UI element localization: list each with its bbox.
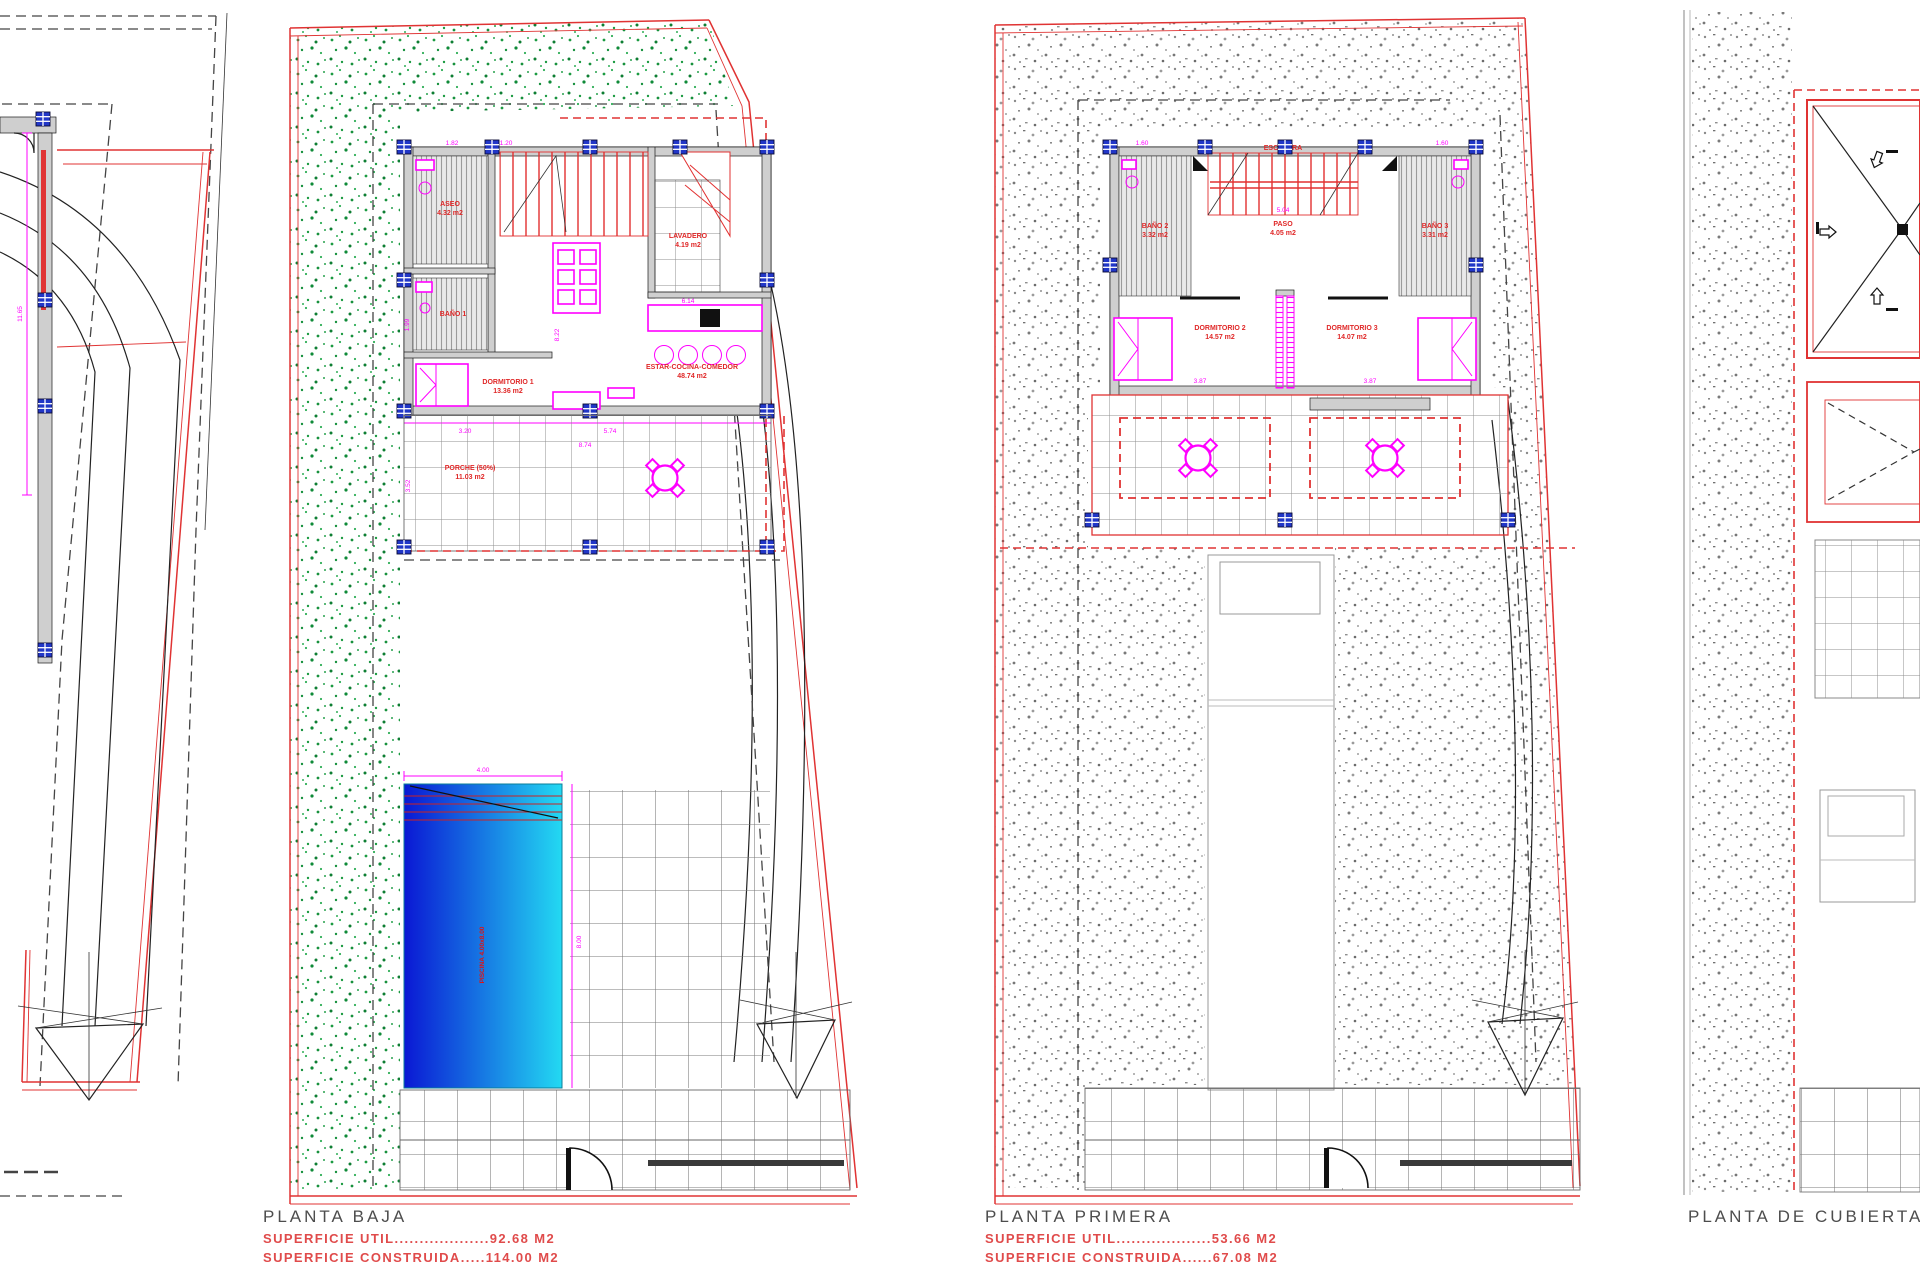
baja-caption: PLANTA BAJA SUPERFICIE UTIL.............… xyxy=(263,1207,559,1265)
primera-stairs: ESCALERA xyxy=(1208,145,1358,215)
room-area-dormitorio1: 13.36 m2 xyxy=(493,388,523,395)
planta-cubierta-panel: PLANTA DE CUBIERTA xyxy=(1670,0,1920,1280)
floor-plan-sheet: 11.65 xyxy=(0,0,1920,1280)
baja-room-lavadero: LAVADERO 4.19 m2 xyxy=(655,180,720,292)
room-label-bano3: BAÑO 3 xyxy=(1422,221,1449,230)
dim-aseo: 1.82 xyxy=(446,140,459,147)
primera-driveway-strip xyxy=(1208,555,1334,1090)
dim-stair: 1.20 xyxy=(500,140,513,147)
anchor-plate xyxy=(38,293,52,307)
primera-house: ESCALERA BAÑO 2 3.32 m2 BAÑO 3 3.31 m2 5… xyxy=(1103,140,1483,395)
dim-bano2: 1.60 xyxy=(1136,140,1149,147)
room-label-dormitorio3: DORMITORIO 3 xyxy=(1326,325,1377,332)
baja-pool: PISCINA 4.00x8.00 4.00 8.00 xyxy=(404,767,770,1088)
room-area-dormitorio3: 14.07 m2 xyxy=(1337,334,1367,341)
dim-dorm2: 3.87 xyxy=(1194,378,1207,385)
room-label-aseo: ASEO xyxy=(440,201,460,208)
room-label-paso: PASO xyxy=(1273,221,1293,228)
primera-room-bano3: BAÑO 3 3.31 m2 xyxy=(1399,156,1471,296)
baja-porch: PORCHE (50%) 11.03 m2 3.52 xyxy=(397,415,784,560)
room-label-porche: PORCHE (50%) xyxy=(445,465,496,472)
anchor-plate xyxy=(38,643,52,657)
dim-bano3: 1.60 xyxy=(1436,140,1449,147)
baja-room-bano1: BAÑO 1 xyxy=(413,278,488,350)
dim-dorm3: 3.87 xyxy=(1364,378,1377,385)
cubierta-pergola-grid xyxy=(1815,540,1920,698)
planta-primera-panel: ESCALERA BAÑO 2 3.32 m2 BAÑO 3 3.31 m2 5… xyxy=(980,0,1600,1280)
superficie-util-primera: SUPERFICIE UTIL...................53.66 … xyxy=(985,1231,1277,1246)
dim-pool-length: 8.00 xyxy=(576,935,583,948)
room-area-bano2: 3.32 m2 xyxy=(1142,232,1168,239)
dim-wall-length: 11.65 xyxy=(17,306,24,322)
primera-room-bano2: BAÑO 2 3.32 m2 xyxy=(1119,156,1191,296)
dim-paso: 5.04 xyxy=(1277,207,1290,214)
room-label-lavadero: LAVADERO xyxy=(669,233,708,240)
plan-title-baja: PLANTA BAJA xyxy=(263,1207,407,1226)
pool-label: PISCINA 4.00x8.00 xyxy=(479,926,486,983)
room-area-bano3: 3.31 m2 xyxy=(1422,232,1448,239)
cubierta-roof xyxy=(1807,100,1920,358)
dim-hall: 1.99 xyxy=(404,318,411,331)
room-label-dormitorio2: DORMITORIO 2 xyxy=(1194,325,1245,332)
gate xyxy=(648,1160,844,1166)
porch-table xyxy=(646,459,684,497)
planta-baja-panel: ASEO 4.32 m2 BAÑO 1 DORMITORIO 1 13.36 m… xyxy=(260,0,920,1280)
cubierta-lower-roof xyxy=(1807,382,1920,522)
superficie-construida-baja: SUPERFICIE CONSTRUIDA.....114.00 M2 xyxy=(263,1250,559,1265)
primera-caption: PLANTA PRIMERA SUPERFICIE UTIL..........… xyxy=(985,1207,1278,1265)
room-area-lavadero: 4.19 m2 xyxy=(675,242,701,249)
room-label-dormitorio1: DORMITORIO 1 xyxy=(482,379,533,386)
terrace-table xyxy=(1179,439,1217,477)
primera-lower-paving xyxy=(1085,1088,1580,1190)
anchor-plate xyxy=(36,112,50,126)
site-plan-panel: 11.65 xyxy=(0,0,240,1280)
plan-title-cubierta: PLANTA DE CUBIERTA xyxy=(1688,1207,1920,1226)
room-area-aseo: 4.32 m2 xyxy=(437,210,463,217)
baja-lower-paving xyxy=(400,1090,850,1190)
terrace-table xyxy=(1366,439,1404,477)
superficie-util-baja: SUPERFICIE UTIL...................92.68 … xyxy=(263,1231,555,1246)
plan-title-primera: PLANTA PRIMERA xyxy=(985,1207,1173,1226)
room-area-dormitorio2: 14.57 m2 xyxy=(1205,334,1235,341)
cubierta-driveway-strip xyxy=(1820,790,1915,902)
gate xyxy=(1400,1160,1572,1166)
superficie-construida-primera: SUPERFICIE CONSTRUIDA......67.08 M2 xyxy=(985,1250,1278,1265)
site-ramp-arrow xyxy=(18,952,162,1100)
room-label-bano1: BAÑO 1 xyxy=(440,309,467,318)
room-label-bano2: BAÑO 2 xyxy=(1142,221,1169,230)
dim-porch: 3.52 xyxy=(405,479,412,492)
dim-kitchen: 6.14 xyxy=(682,298,695,305)
dim-pool-width: 4.00 xyxy=(477,767,490,774)
cubierta-lower-paving xyxy=(1800,1088,1920,1192)
room-area-estar: 48.74 m2 xyxy=(677,373,707,380)
site-retaining-wall: 11.65 xyxy=(0,112,56,663)
room-area-paso: 4.05 m2 xyxy=(1270,230,1296,237)
site-plot-boundaries xyxy=(0,13,227,1196)
baja-room-aseo: ASEO 4.32 m2 xyxy=(413,156,488,264)
anchor-plate xyxy=(38,399,52,413)
dim-depth: 8.22 xyxy=(554,328,561,341)
room-label-estar: ESTAR-COCINA-COMEDOR xyxy=(646,364,738,371)
room-area-porche: 11.03 m2 xyxy=(455,474,484,481)
